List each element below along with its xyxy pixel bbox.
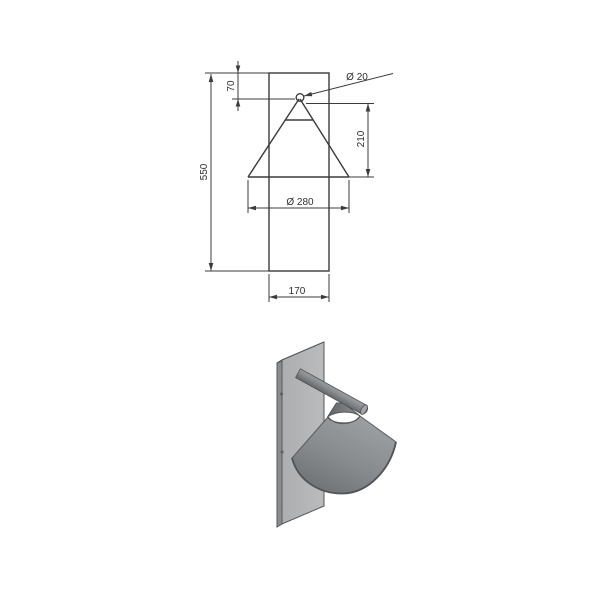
- dim-label-210: 210: [356, 130, 367, 147]
- dimension-spigot-diameter: Ø 20: [304, 72, 393, 96]
- lamp-spec-sheet: 550 70 210: [0, 0, 600, 600]
- dimension-shade-height: 210: [306, 104, 374, 178]
- perspective-render: [277, 342, 396, 527]
- dim-label-550: 550: [199, 163, 210, 180]
- dim-label-d280: Ø 280: [286, 197, 314, 208]
- dimension-overall-height: 550: [199, 73, 269, 271]
- spec-sheet-canvas: 550 70 210: [0, 0, 600, 600]
- dimension-backplate-width: 170: [269, 274, 329, 302]
- dim-label-70: 70: [226, 80, 237, 92]
- screw-dot: [280, 392, 283, 395]
- shade-outline: [248, 99, 349, 177]
- dim-label-170: 170: [289, 286, 306, 297]
- dimension-shade-diameter: Ø 280: [248, 180, 349, 213]
- dim-label-d20: Ø 20: [346, 72, 368, 83]
- backplate-outline: [269, 73, 329, 271]
- front-view-drawing: 550 70 210: [199, 61, 393, 302]
- dimension-apex-offset: 70: [226, 61, 295, 111]
- screw-dot: [280, 450, 283, 453]
